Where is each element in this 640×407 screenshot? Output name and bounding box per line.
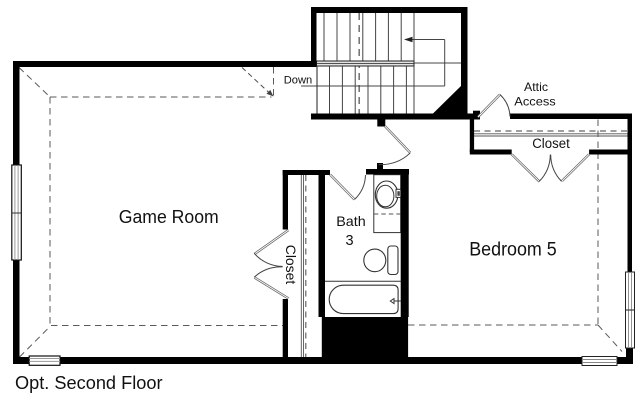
svg-text:Opt. Second Floor: Opt. Second Floor [15,373,163,393]
svg-text:Closet: Closet [532,136,570,151]
svg-text:Attic: Attic [524,80,548,94]
svg-text:Access: Access [514,95,556,109]
svg-text:Bath: Bath [336,213,366,229]
svg-text:3: 3 [345,233,353,249]
svg-text:Game Room: Game Room [119,206,219,227]
svg-text:Bedroom 5: Bedroom 5 [469,239,557,261]
svg-text:Closet: Closet [283,245,299,285]
svg-text:Down: Down [284,74,313,86]
